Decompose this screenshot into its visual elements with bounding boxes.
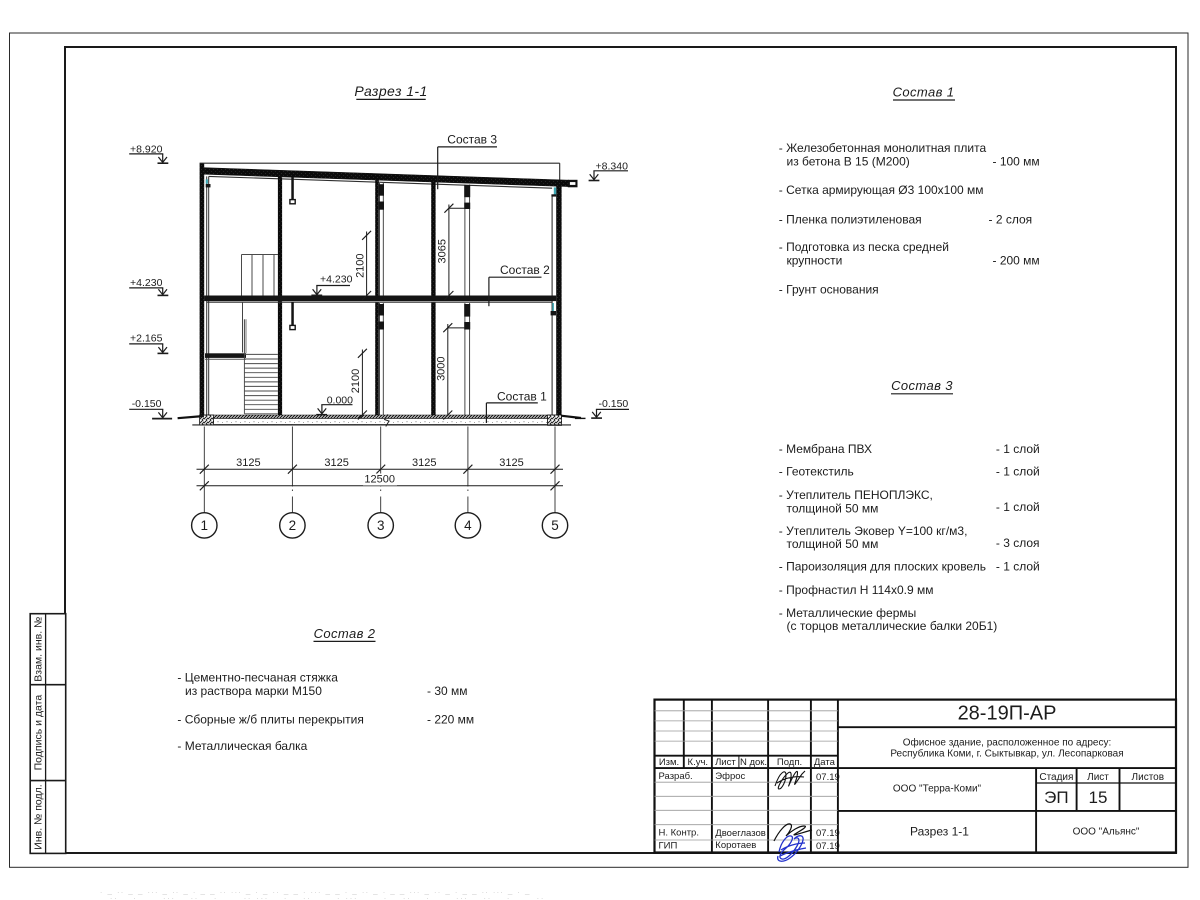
svg-text:- Профнастил Н 114х0.9 мм: - Профнастил Н 114х0.9 мм xyxy=(779,583,934,597)
svg-text:Подпись и дата: Подпись и дата xyxy=(33,695,45,771)
svg-text:Стадия: Стадия xyxy=(1039,772,1073,783)
svg-text:.. _ . _ _ ... _ .. _ . _ _ ..: .. _ . _ _ ... _ .. _ . _ _ .. ... _ . _… xyxy=(110,892,545,900)
svg-text:- Сборные ж/б плиты перекрытия: - Сборные ж/б плиты перекрытия xyxy=(177,713,363,727)
svg-text:Изм.: Изм. xyxy=(659,757,679,768)
svg-text:Лист: Лист xyxy=(715,757,736,768)
svg-text:толщиной 50 мм: толщиной 50 мм xyxy=(787,537,879,551)
svg-text:Разрез 1-1: Разрез 1-1 xyxy=(354,83,427,99)
svg-text:- 100 мм: - 100 мм xyxy=(993,155,1040,169)
svg-text:- Сетка армирующая Ø3 100х100: - Сетка армирующая Ø3 100х100 мм xyxy=(779,183,984,197)
svg-text:- 1 слой: - 1 слой xyxy=(996,560,1040,574)
svg-text:из бетона В 15 (М200): из бетона В 15 (М200) xyxy=(787,155,910,169)
svg-text:+2.165: +2.165 xyxy=(130,332,163,344)
svg-text:12500: 12500 xyxy=(364,474,395,486)
svg-text:- Грунт основания: - Грунт основания xyxy=(779,283,879,297)
svg-text:3065: 3065 xyxy=(437,239,449,263)
svg-text:- Утеплитель Эковер Y=100 кг/м: - Утеплитель Эковер Y=100 кг/м3, xyxy=(779,524,968,538)
svg-text:- Железобетонная монолитная п: - Железобетонная монолитная плита xyxy=(779,141,987,155)
svg-text:3125: 3125 xyxy=(236,457,260,469)
svg-text:- 1 слой: - 1 слой xyxy=(996,442,1040,456)
svg-text:- 200 мм: - 200 мм xyxy=(993,254,1040,268)
svg-text:- 2 слоя: - 2 слоя xyxy=(989,213,1033,227)
svg-text:Состав 3: Состав 3 xyxy=(891,378,953,393)
svg-text:Взам. инв. №: Взам. инв. № xyxy=(33,617,45,682)
svg-text:толщиной 50 мм: толщиной 50 мм xyxy=(787,501,879,515)
svg-text:- Подготовка из песка средней: - Подготовка из песка средней xyxy=(779,240,949,254)
svg-text:Состав 1: Состав 1 xyxy=(497,389,547,403)
svg-text:Лист: Лист xyxy=(1087,772,1109,783)
svg-text:3125: 3125 xyxy=(499,457,523,469)
svg-text:15: 15 xyxy=(1089,788,1108,807)
svg-text:Эфрос: Эфрос xyxy=(715,771,745,782)
svg-text:07.19: 07.19 xyxy=(816,841,840,852)
svg-text:Состав 1: Состав 1 xyxy=(893,85,955,100)
svg-text:2: 2 xyxy=(289,518,297,533)
svg-text:- Геотекстиль: - Геотекстиль xyxy=(779,464,854,478)
svg-text:-0.150: -0.150 xyxy=(132,398,162,410)
svg-text:2100: 2100 xyxy=(354,253,366,277)
svg-text:- 220 мм: - 220 мм xyxy=(427,713,474,727)
svg-text:- Металлические фермы: - Металлические фермы xyxy=(779,606,916,620)
svg-text:-0.150: -0.150 xyxy=(599,398,629,410)
svg-text:4: 4 xyxy=(464,518,472,533)
svg-text:2100: 2100 xyxy=(350,369,362,393)
svg-text:Инв. № подл.: Инв. № подл. xyxy=(33,784,45,849)
svg-text:- 1 слой: - 1 слой xyxy=(996,500,1040,514)
svg-text:Разрез 1-1: Разрез 1-1 xyxy=(910,825,969,839)
svg-text:Состав 2: Состав 2 xyxy=(314,626,376,641)
svg-text:- Металлическая балка: - Металлическая балка xyxy=(177,739,307,753)
svg-text:из раствора марки М150: из раствора марки М150 xyxy=(185,684,322,698)
svg-text:3125: 3125 xyxy=(412,457,436,469)
svg-text:Подп.: Подп. xyxy=(777,757,802,768)
svg-text:5: 5 xyxy=(551,518,559,533)
svg-text:Офисное здание, расположенное: Офисное здание, расположенное по адресу: xyxy=(903,737,1112,749)
svg-text:3000: 3000 xyxy=(436,356,448,380)
svg-text:- 1 слой: - 1 слой xyxy=(996,464,1040,478)
svg-text:N док.: N док. xyxy=(740,757,767,768)
svg-text:+4.230: +4.230 xyxy=(320,274,353,286)
svg-text:К.уч.: К.уч. xyxy=(688,757,709,768)
svg-text:Дата: Дата xyxy=(814,757,836,768)
svg-text:07.19: 07.19 xyxy=(816,828,840,839)
svg-text:Состав 3: Состав 3 xyxy=(447,132,497,146)
svg-text:- Пароизоляция для плоских кро: - Пароизоляция для плоских кровель xyxy=(779,560,986,574)
svg-text:крупности: крупности xyxy=(787,254,843,268)
svg-text:- 30 мм: - 30 мм xyxy=(427,684,468,698)
svg-text:Коротаев: Коротаев xyxy=(715,840,756,851)
svg-text:(с торцов металлические балки: (с торцов металлические балки 20Б1) xyxy=(787,619,998,633)
svg-text:Листов: Листов xyxy=(1132,772,1165,783)
svg-text:3: 3 xyxy=(377,518,385,533)
svg-text:07.19: 07.19 xyxy=(816,772,840,783)
svg-text:Разраб.: Разраб. xyxy=(659,771,693,782)
svg-text:Двоеглазов: Двоеглазов xyxy=(715,828,766,839)
svg-text:Республика Коми, г. Сыктывкар,: Республика Коми, г. Сыктывкар, ул. Лесоп… xyxy=(890,748,1123,760)
svg-text:1: 1 xyxy=(201,518,209,533)
svg-text:ЭП: ЭП xyxy=(1044,788,1068,807)
svg-text:Состав 2: Состав 2 xyxy=(500,263,550,277)
svg-text:- Пленка полиэтиленовая: - Пленка полиэтиленовая xyxy=(779,213,922,227)
svg-text:- Мембрана ПВХ: - Мембрана ПВХ xyxy=(779,442,872,456)
svg-text:ООО "Альянс": ООО "Альянс" xyxy=(1073,827,1140,838)
svg-text:ООО "Терра-Коми": ООО "Терра-Коми" xyxy=(893,784,982,795)
svg-text:- Цементно-песчаная стяжка: - Цементно-песчаная стяжка xyxy=(177,671,338,685)
svg-text:Н. Контр.: Н. Контр. xyxy=(659,828,699,839)
svg-text:28-19П-АР: 28-19П-АР xyxy=(958,703,1057,725)
svg-text:3125: 3125 xyxy=(324,457,348,469)
svg-text:- Утеплитель ПЕНОПЛЭКС,: - Утеплитель ПЕНОПЛЭКС, xyxy=(779,488,933,502)
svg-text:- 3 слоя: - 3 слоя xyxy=(996,536,1040,550)
svg-text:ГИП: ГИП xyxy=(659,841,678,852)
